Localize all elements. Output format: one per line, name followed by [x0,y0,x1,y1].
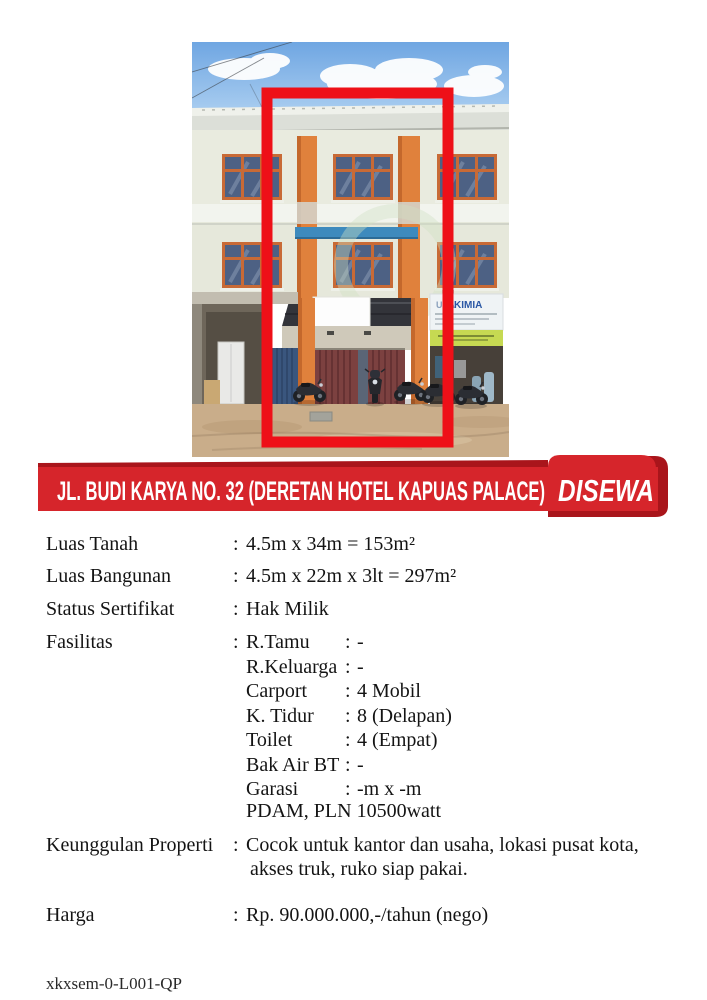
fasilitas-name: Bak Air BT [246,754,339,777]
fasilitas-value: - [357,754,364,777]
harga-label: Harga [46,904,95,927]
detail-label: Status Sertifikat [46,598,174,621]
fasilitas-name: R.Keluarga [246,656,337,679]
fasilitas-row-2: Carport : 4 Mobil [0,680,707,706]
fasilitas-row-4: Toilet : 4 (Empat) [0,729,707,755]
curb-stone [310,412,332,421]
property-photo: USA KIMIA [192,42,509,457]
colon: : [233,533,239,556]
colon: : [345,656,351,679]
fasilitas-value: 4 (Empat) [357,729,438,752]
detail-value: 4.5m x 22m x 3lt = 297m² [246,565,456,588]
fasilitas-value: - [357,631,364,654]
fasilitas-name: R.Tamu [246,631,310,654]
fasilitas-label: Fasilitas [46,631,113,654]
keunggulan-line-1: Cocok untuk kantor dan usaha, lokasi pus… [246,834,639,857]
keunggulan-row-2: akses truk, ruko siap pakai. [0,858,707,884]
detail-row-status-sertifikat: Status Sertifikat : Hak Milik [0,598,707,624]
banner-status-text: DISEWA [558,473,654,508]
banner-address-text: JL. BUDI KARYA NO. 32 (DERETAN HOTEL KAP… [57,476,545,506]
title-banner: JL. BUDI KARYA NO. 32 (DERETAN HOTEL KAP… [0,448,707,520]
harga-row: Harga : Rp. 90.000.000,-/tahun (nego) [0,904,707,930]
detail-label: Luas Tanah [46,533,138,556]
shop-sign-green-strip [430,330,503,346]
fasilitas-name: Garasi [246,778,298,801]
fasilitas-name: Toilet [246,729,292,752]
keunggulan-line-2: akses truk, ruko siap pakai. [250,858,468,881]
detail-value: Hak Milik [246,598,329,621]
colon: : [345,705,351,728]
keunggulan-label: Keunggulan Properti [46,834,213,857]
colon: : [233,598,239,621]
colon: : [233,565,239,588]
fasilitas-name: Carport [246,680,307,703]
fasilitas-row-0: Fasilitas : R.Tamu : - [0,631,707,657]
building: USA KIMIA [192,104,509,412]
detail-row-luas-bangunan: Luas Bangunan : 4.5m x 22m x 3lt = 297m² [0,565,707,591]
fasilitas-row-5: Bak Air BT : - [0,754,707,780]
colon: : [345,778,351,801]
listing-code: xkxsem-0-L001-QP [46,974,182,994]
colon: : [345,631,351,654]
left-unit [192,292,298,407]
fasilitas-name: K. Tidur [246,705,314,728]
colon: : [233,904,239,927]
fasilitas-row-7: PDAM, PLN 10500watt [0,800,707,826]
fasilitas-value: 4 Mobil [357,680,421,703]
colon: : [233,631,239,654]
colon: : [233,834,239,857]
colon: : [345,680,351,703]
fasilitas-row-1: R.Keluarga : - [0,656,707,682]
detail-label: Luas Bangunan [46,565,171,588]
property-photo-illustration: USA KIMIA [192,42,509,457]
fasilitas-name: PDAM, PLN 10500watt [246,800,441,823]
harga-value: Rp. 90.000.000,-/tahun (nego) [246,904,488,927]
shop-sign-text: KIMIA [454,300,482,311]
detail-value: 4.5m x 34m = 153m² [246,533,415,556]
colon: : [345,754,351,777]
fasilitas-value: - [357,656,364,679]
maroon-shutter [315,348,405,407]
colon: : [345,729,351,752]
keunggulan-row: Keunggulan Properti : Cocok untuk kantor… [0,834,707,860]
fasilitas-row-3: K. Tidur : 8 (Delapan) [0,705,707,731]
fasilitas-value: 8 (Delapan) [357,705,452,728]
detail-row-luas-tanah: Luas Tanah : 4.5m x 34m = 153m² [0,533,707,559]
fasilitas-value: -m x -m [357,778,421,801]
cardboard-box [204,380,220,404]
